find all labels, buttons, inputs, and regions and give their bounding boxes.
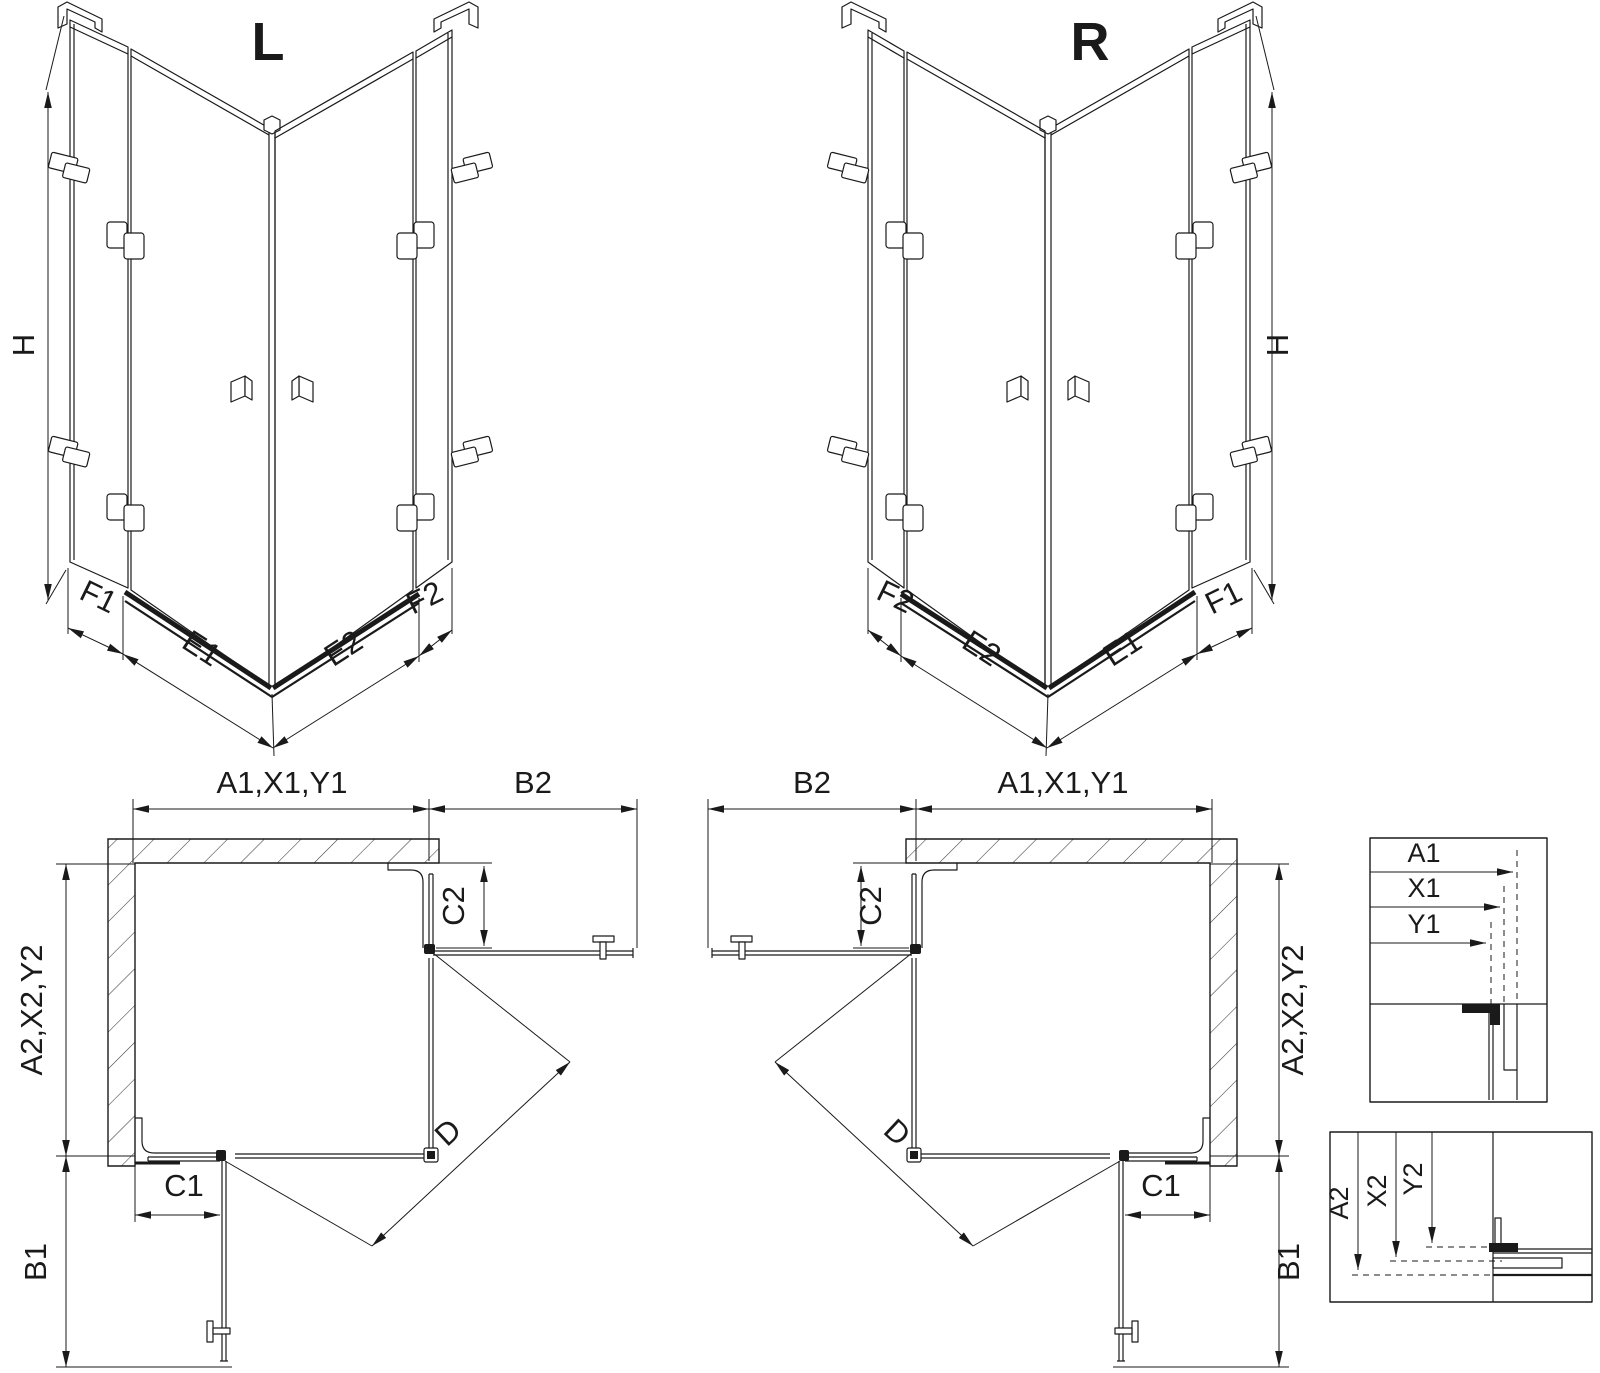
detail-label-y1: Y1 — [1407, 909, 1440, 939]
plan-right-label-a1x1y1: A1,X1,Y1 — [998, 765, 1129, 800]
detail-label-x2: X2 — [1362, 1174, 1392, 1207]
plan-left-label-d: D — [428, 1112, 468, 1153]
plan-geometry-left — [56, 799, 637, 1367]
detail-label-x1: X1 — [1407, 873, 1440, 903]
variant-title-left: L — [252, 12, 285, 72]
plan-left-label-a1x1y1: A1,X1,Y1 — [217, 765, 348, 800]
iso-view-left — [46, 2, 494, 756]
plan-right-label-a2x2y2: A2,X2,Y2 — [1275, 945, 1310, 1076]
plan-view-left — [56, 799, 637, 1367]
detail-top-border — [1370, 838, 1547, 1102]
plan-left-label-c1: C1 — [164, 1168, 204, 1203]
detail-bottom-border — [1330, 1132, 1592, 1302]
plan-right-label-b2: B2 — [793, 765, 831, 800]
detail-label-a2: A2 — [1324, 1186, 1354, 1219]
label-height-right: H — [1260, 334, 1295, 356]
plan-right-label-b1: B1 — [1271, 1243, 1306, 1281]
detail-top-glass — [1489, 1013, 1493, 1100]
detail-label-a1: A1 — [1407, 838, 1440, 868]
detail-view-a1-x1-y1 — [1370, 838, 1547, 1102]
plan-right-label-c1: C1 — [1141, 1168, 1181, 1203]
iso-geometry-left — [46, 2, 494, 756]
label-f2-right: F2 — [872, 573, 920, 620]
detail-top-bracket — [1462, 1004, 1500, 1025]
plan-left-label-b1: B1 — [18, 1243, 53, 1281]
detail-bottom-bracket — [1489, 1243, 1518, 1252]
plan-right-label-d: D — [877, 1112, 917, 1153]
detail-bottom-glass-stub — [1495, 1218, 1501, 1244]
plan-right-wall-hatched — [906, 839, 1237, 1166]
plan-left-label-b2: B2 — [514, 765, 552, 800]
plan-right-label-c2: C2 — [853, 886, 888, 926]
label-f2-left: F2 — [400, 574, 448, 621]
iso-view-right — [826, 2, 1274, 756]
detail-top-profile-step — [1504, 1004, 1517, 1070]
variant-title-right: R — [1071, 12, 1110, 72]
detail-bottom-profile — [1493, 1258, 1562, 1268]
shower-enclosure-technical-drawing: L R H F1 E1 E2 F2 H F2 E2 E1 F1 A1,X1,Y1… — [0, 0, 1600, 1373]
plan-left-wall-hatched — [108, 839, 439, 1166]
iso-geometry-right-mirrored — [826, 2, 1274, 756]
plan-left-label-a2x2y2: A2,X2,Y2 — [14, 945, 49, 1076]
plan-view-right — [708, 799, 1289, 1367]
detail-view-a2-x2-y2 — [1330, 1132, 1592, 1302]
plan-geometry-right-mirrored — [708, 799, 1289, 1367]
detail-label-y2: Y2 — [1398, 1162, 1428, 1195]
drawing-canvas: L R H F1 E1 E2 F2 H F2 E2 E1 F1 A1,X1,Y1… — [0, 0, 1600, 1373]
plan-left-label-c2: C2 — [436, 886, 471, 926]
label-height-left: H — [6, 334, 41, 356]
label-f1-left: F1 — [75, 573, 123, 620]
